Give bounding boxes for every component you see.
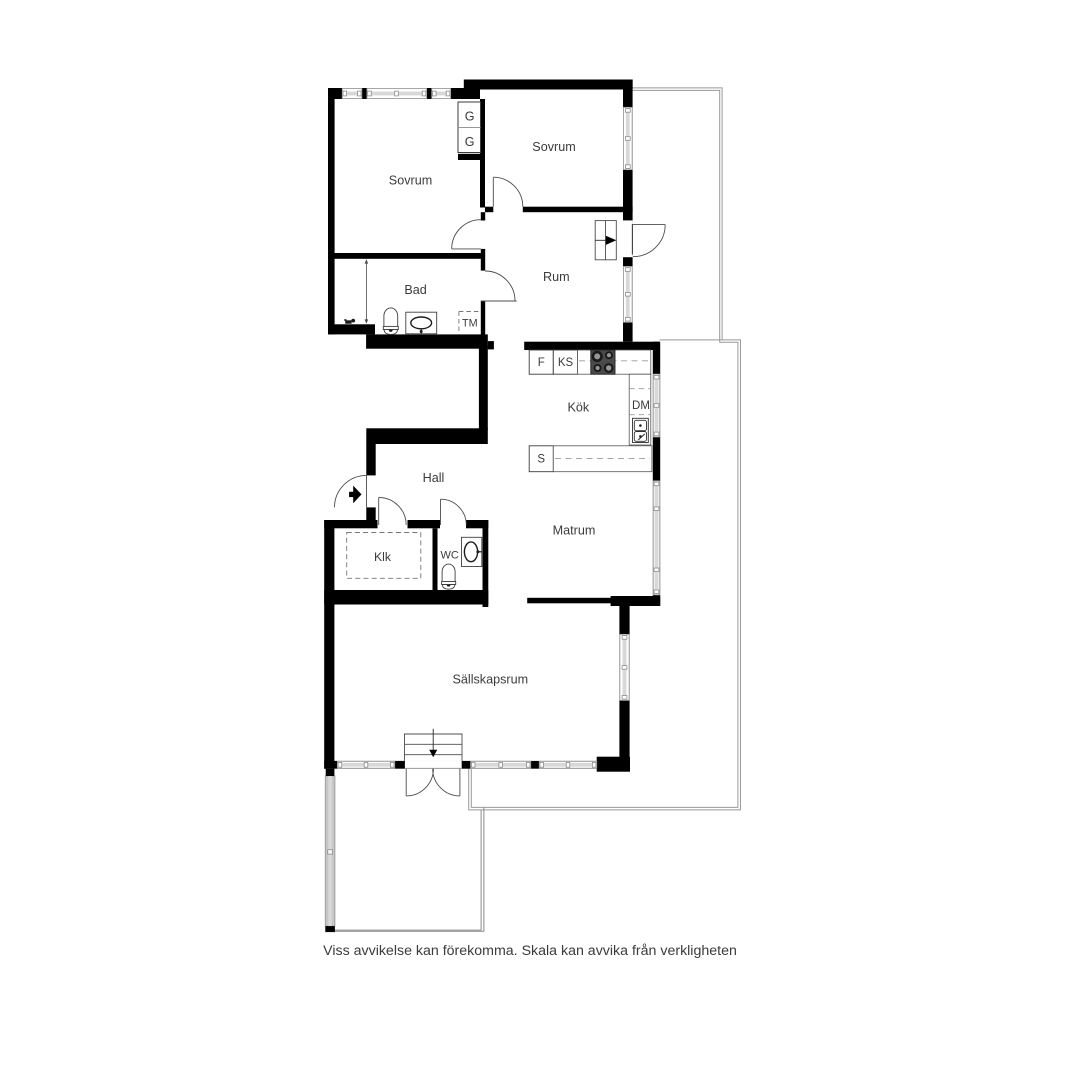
svg-text:Hall: Hall (423, 471, 445, 485)
svg-text:Matrum: Matrum (553, 524, 596, 538)
svg-text:Rum: Rum (543, 270, 570, 284)
svg-text:KS: KS (558, 357, 574, 369)
svg-text:Sällskapsrum: Sällskapsrum (453, 673, 529, 687)
svg-text:DM: DM (632, 400, 650, 412)
svg-text:Bad: Bad (404, 283, 426, 297)
svg-text:Kök: Kök (567, 401, 589, 415)
svg-text:G: G (465, 110, 475, 124)
svg-text:WC: WC (441, 550, 459, 562)
svg-text:G: G (465, 135, 475, 149)
svg-text:Sovrum: Sovrum (389, 174, 432, 188)
svg-text:Viss avvikelse kan förekomma.: Viss avvikelse kan förekomma. Skala kan … (323, 943, 737, 959)
svg-text:F: F (538, 357, 545, 369)
svg-text:Klk: Klk (374, 550, 392, 564)
svg-text:Sovrum: Sovrum (532, 140, 575, 154)
svg-text:TM: TM (462, 318, 478, 330)
svg-text:S: S (537, 454, 545, 466)
